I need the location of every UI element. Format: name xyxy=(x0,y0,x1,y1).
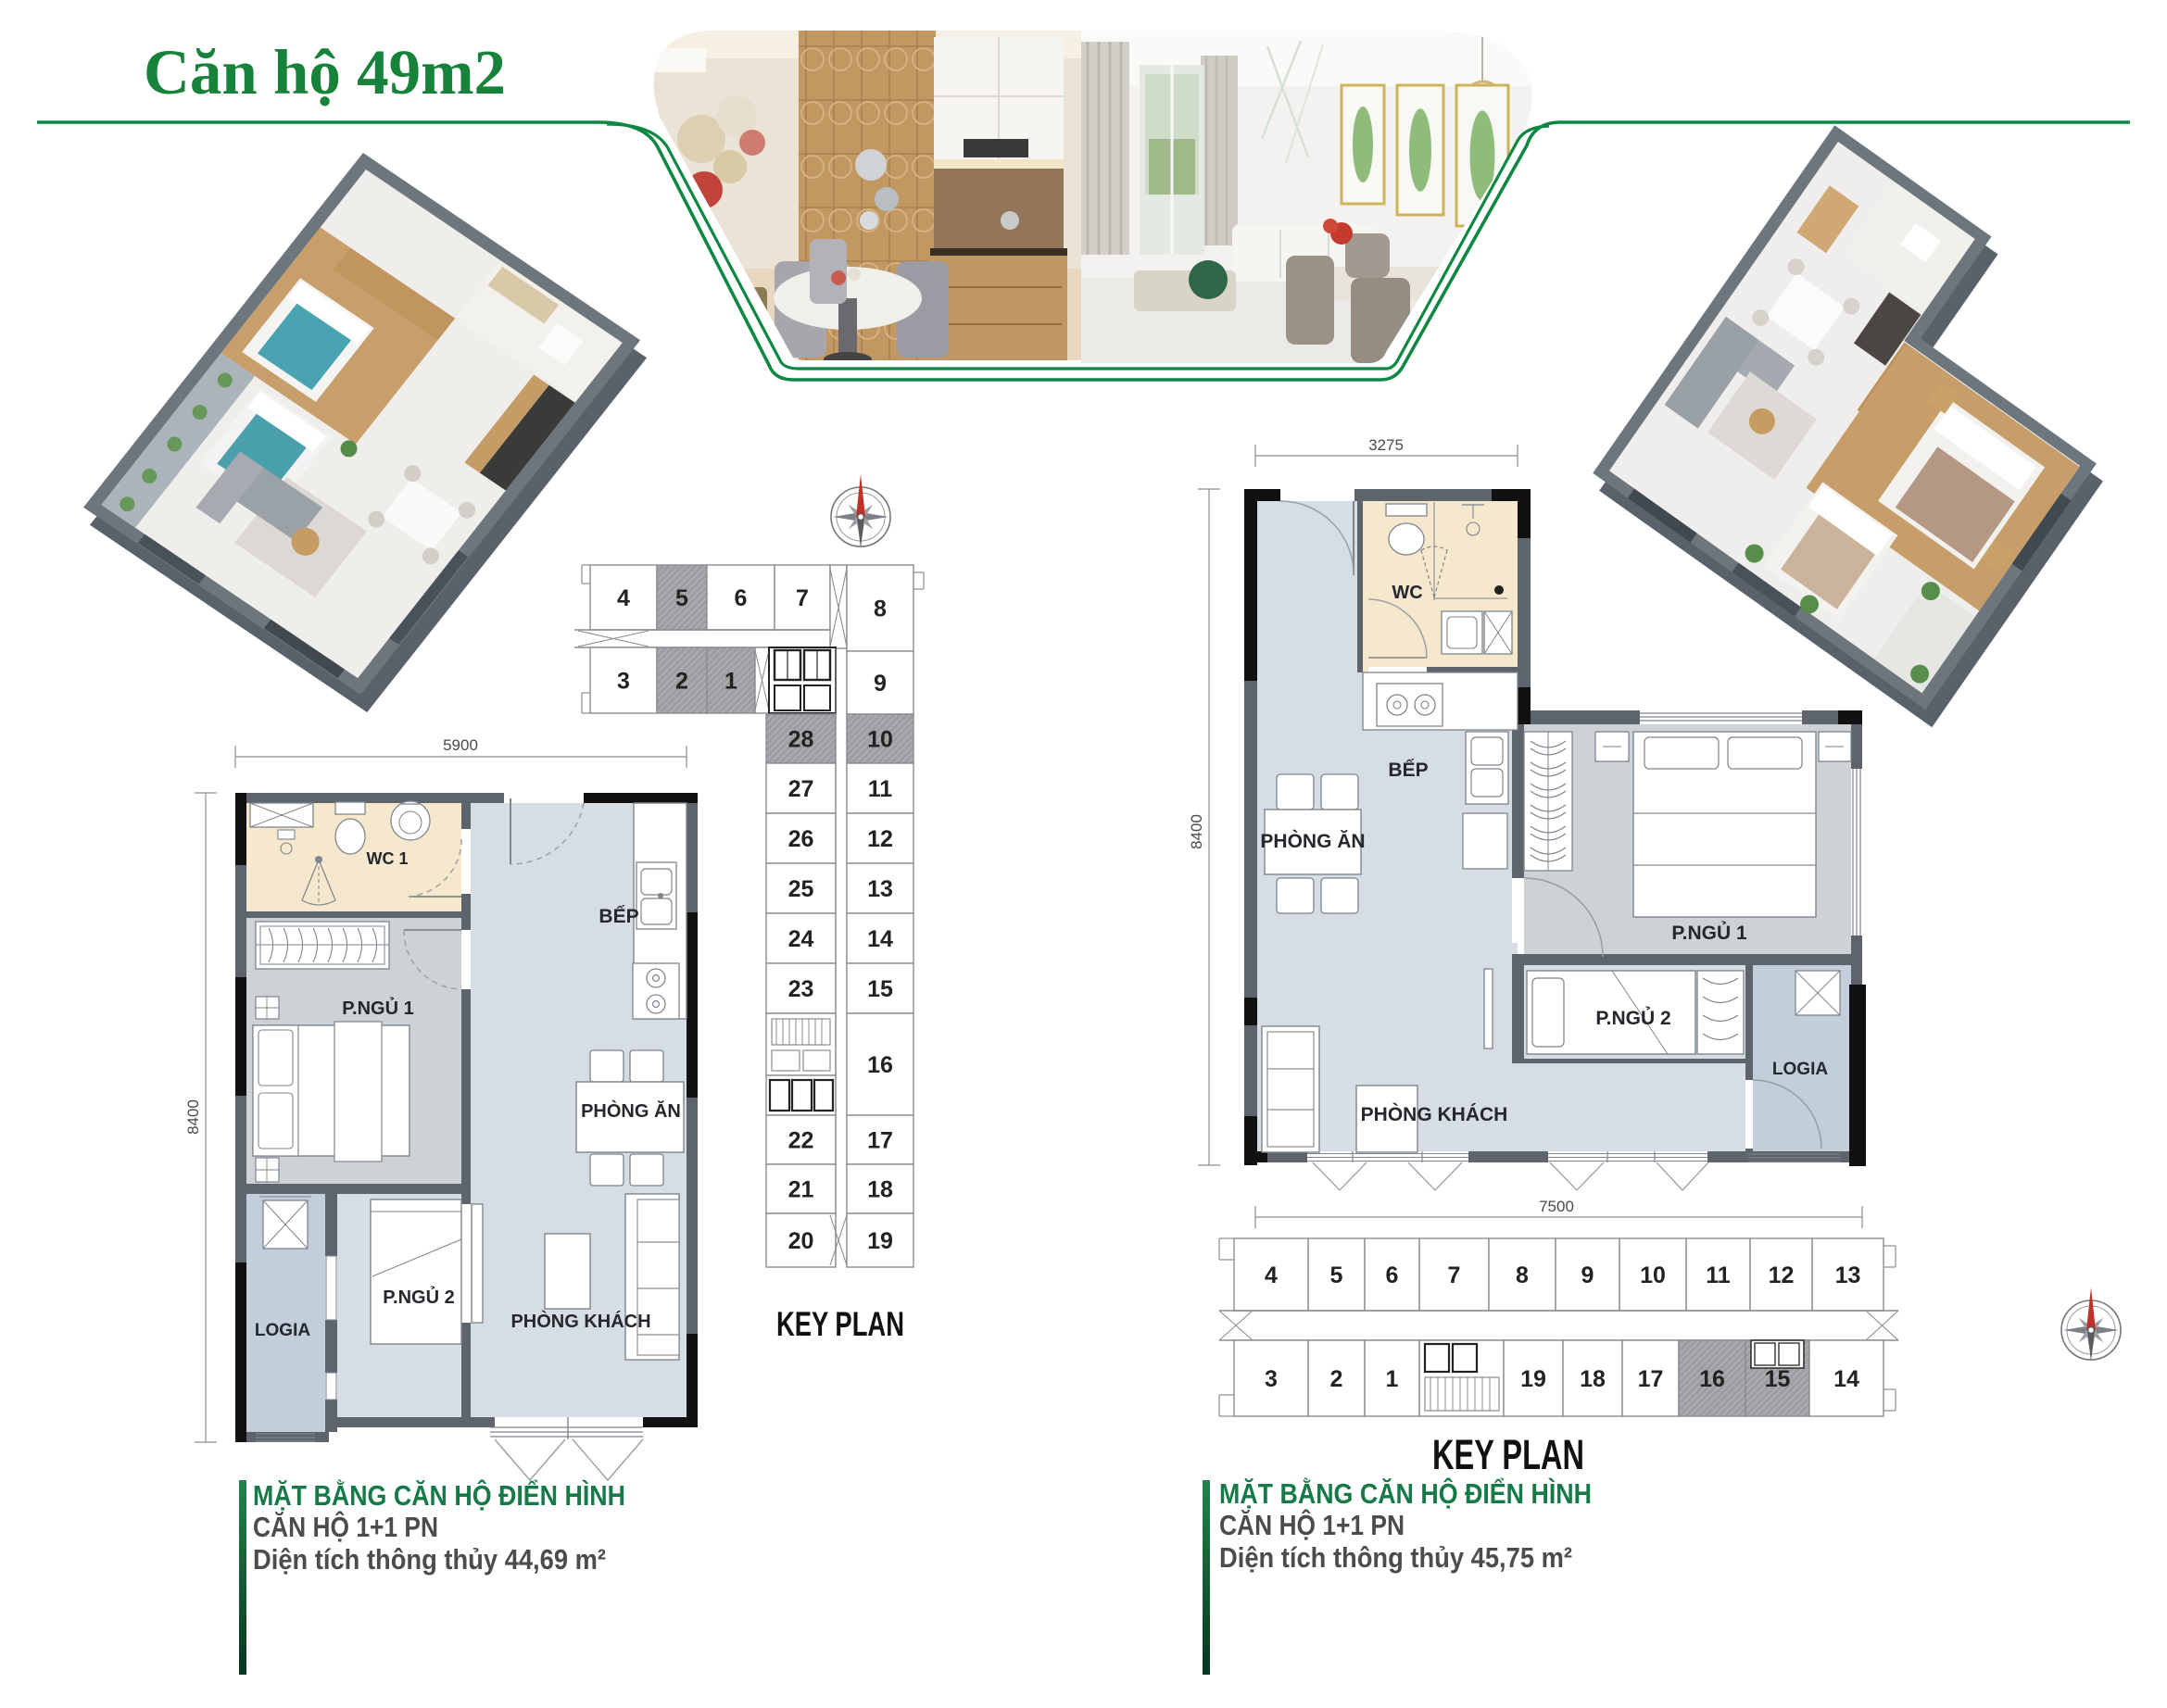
svg-text:18: 18 xyxy=(867,1177,893,1203)
svg-text:17: 17 xyxy=(867,1128,893,1154)
svg-text:4: 4 xyxy=(1265,1262,1278,1288)
svg-text:CĂN HỘ 1+1 PN: CĂN HỘ 1+1 PN xyxy=(253,1510,438,1543)
svg-text:11: 11 xyxy=(868,776,893,802)
svg-text:P.NGỦ 1: P.NGỦ 1 xyxy=(342,997,413,1019)
svg-text:PHÒNG KHÁCH: PHÒNG KHÁCH xyxy=(510,1310,650,1332)
svg-text:8400: 8400 xyxy=(1188,814,1205,849)
svg-text:9: 9 xyxy=(874,671,887,697)
svg-text:25: 25 xyxy=(788,876,814,902)
svg-text:6: 6 xyxy=(1386,1262,1399,1288)
svg-text:19: 19 xyxy=(1520,1366,1546,1392)
svg-text:8: 8 xyxy=(874,597,887,622)
svg-text:11: 11 xyxy=(1706,1262,1731,1288)
svg-text:LOGIA: LOGIA xyxy=(255,1321,310,1340)
svg-text:PHÒNG ĂN: PHÒNG ĂN xyxy=(581,1099,681,1122)
svg-text:4: 4 xyxy=(617,585,630,611)
svg-text:15: 15 xyxy=(1765,1366,1791,1392)
svg-text:WC: WC xyxy=(1392,583,1422,603)
svg-text:26: 26 xyxy=(788,826,814,852)
svg-text:KEY PLAN: KEY PLAN xyxy=(1432,1431,1584,1478)
svg-text:5: 5 xyxy=(675,585,688,611)
svg-text:21: 21 xyxy=(788,1177,814,1203)
svg-text:7: 7 xyxy=(796,585,809,611)
svg-text:12: 12 xyxy=(1769,1262,1795,1288)
svg-text:14: 14 xyxy=(1833,1366,1859,1392)
svg-text:3: 3 xyxy=(1265,1366,1278,1392)
svg-text:PHÒNG KHÁCH: PHÒNG KHÁCH xyxy=(1361,1103,1508,1125)
svg-text:27: 27 xyxy=(788,776,814,802)
svg-text:28: 28 xyxy=(788,727,814,753)
svg-text:WC 1: WC 1 xyxy=(367,849,409,868)
svg-text:12: 12 xyxy=(867,826,893,852)
svg-text:CĂN HỘ 1+1 PN: CĂN HỘ 1+1 PN xyxy=(1219,1508,1405,1541)
svg-text:P.NGỦ 1: P.NGỦ 1 xyxy=(1671,922,1747,944)
svg-text:3275: 3275 xyxy=(1368,436,1404,454)
svg-text:2: 2 xyxy=(675,669,688,695)
svg-text:8: 8 xyxy=(1516,1262,1529,1288)
svg-text:7500: 7500 xyxy=(1539,1198,1574,1215)
svg-text:16: 16 xyxy=(867,1052,893,1078)
svg-text:BẾP: BẾP xyxy=(598,906,638,927)
svg-text:P.NGỦ 2: P.NGỦ 2 xyxy=(1595,1007,1670,1029)
svg-text:BẾP: BẾP xyxy=(1388,760,1428,781)
svg-text:7: 7 xyxy=(1448,1262,1461,1288)
svg-text:17: 17 xyxy=(1638,1366,1664,1392)
svg-text:13: 13 xyxy=(1835,1262,1861,1288)
svg-text:5900: 5900 xyxy=(443,736,478,754)
svg-text:3: 3 xyxy=(617,669,630,695)
svg-text:LOGIA: LOGIA xyxy=(1772,1060,1828,1079)
svg-text:9: 9 xyxy=(1581,1262,1594,1288)
svg-text:13: 13 xyxy=(867,876,893,902)
svg-text:6: 6 xyxy=(735,585,748,611)
svg-text:20: 20 xyxy=(788,1228,814,1254)
svg-text:2: 2 xyxy=(1330,1366,1343,1392)
svg-text:16: 16 xyxy=(1699,1366,1725,1392)
svg-text:10: 10 xyxy=(867,727,893,753)
svg-text:PHÒNG ĂN: PHÒNG ĂN xyxy=(1260,830,1365,852)
svg-text:18: 18 xyxy=(1580,1366,1606,1392)
svg-text:KEY PLAN: KEY PLAN xyxy=(776,1305,904,1343)
svg-text:5: 5 xyxy=(1330,1262,1343,1288)
svg-text:Diện tích thông thủy 45,75 m²: Diện tích thông thủy 45,75 m² xyxy=(1219,1541,1572,1574)
svg-text:22: 22 xyxy=(788,1128,814,1154)
svg-text:Diện tích thông thủy 44,69 m²: Diện tích thông thủy 44,69 m² xyxy=(253,1543,606,1576)
svg-text:Căn hộ 49m2: Căn hộ 49m2 xyxy=(144,37,506,107)
svg-text:8400: 8400 xyxy=(184,1099,202,1135)
svg-text:19: 19 xyxy=(867,1228,893,1254)
svg-text:P.NGỦ 2: P.NGỦ 2 xyxy=(383,1286,454,1308)
svg-text:MẶT BẰNG CĂN HỘ ĐIỂN HÌNH: MẶT BẰNG CĂN HỘ ĐIỂN HÌNH xyxy=(253,1478,625,1512)
svg-text:1: 1 xyxy=(724,669,737,695)
svg-text:24: 24 xyxy=(788,926,814,952)
svg-text:10: 10 xyxy=(1640,1262,1666,1288)
svg-text:14: 14 xyxy=(867,926,893,952)
svg-text:23: 23 xyxy=(788,976,814,1002)
svg-text:MẶT BẰNG CĂN HỘ ĐIỂN HÌNH: MẶT BẰNG CĂN HỘ ĐIỂN HÌNH xyxy=(1219,1476,1592,1510)
svg-text:15: 15 xyxy=(867,976,893,1002)
svg-text:1: 1 xyxy=(1386,1366,1399,1392)
